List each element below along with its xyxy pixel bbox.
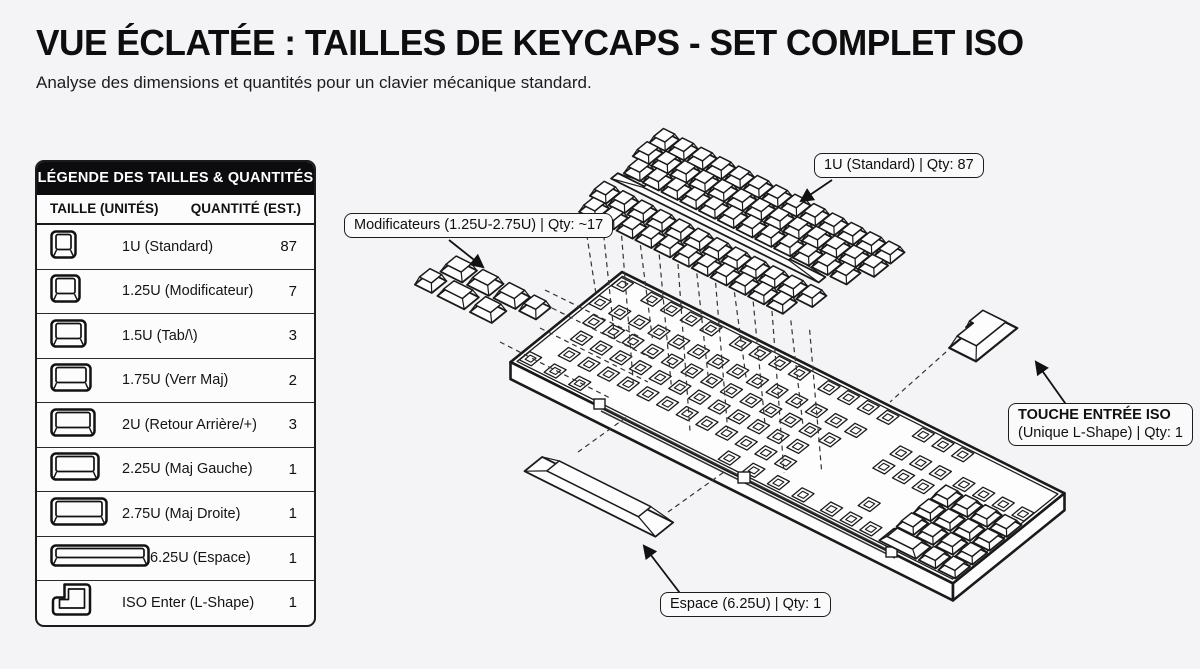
legend-row-label: 1.75U (Verr Maj) xyxy=(122,372,228,388)
legend-row: 1.25U (Modificateur) 7 xyxy=(37,270,314,315)
legend-row: 1.5U (Tab/\) 3 xyxy=(37,314,314,359)
page-header: VUE ÉCLATÉE : TAILLES DE KEYCAPS - SET C… xyxy=(36,22,1044,93)
callout-modifiers: Modificateurs (1.25U-2.75U) | Qty: ~17 xyxy=(344,213,613,238)
legend-row: 2U (Retour Arrière/+) 3 xyxy=(37,403,314,448)
legend-col-size: TAILLE (UNITÉS) xyxy=(50,201,159,216)
page-subtitle: Analyse des dimensions et quantités pour… xyxy=(36,73,1044,93)
legend-row: 2.25U (Maj Gauche) 1 xyxy=(37,448,314,493)
legend-row-qty: 87 xyxy=(273,238,301,255)
legend-row: ISO Enter (L-Shape) 1 xyxy=(37,581,314,625)
keycap-1-5u-icon xyxy=(50,319,87,353)
callout-spacebar: Espace (6.25U) | Qty: 1 xyxy=(660,592,831,617)
legend-row: 1U (Standard) 87 xyxy=(37,225,314,270)
legend-table: LÉGENDE DES TAILLES & QUANTITÉS TAILLE (… xyxy=(35,160,316,627)
legend-row-label: 1.5U (Tab/\) xyxy=(122,328,198,344)
legend-col-qty: QUANTITÉ (EST.) xyxy=(191,201,301,216)
legend-row-label: 2U (Retour Arrière/+) xyxy=(122,417,257,433)
legend-column-headers: TAILLE (UNITÉS) QUANTITÉ (EST.) xyxy=(37,195,314,225)
page-title: VUE ÉCLATÉE : TAILLES DE KEYCAPS - SET C… xyxy=(36,22,1024,64)
keycap-6-25u-icon xyxy=(50,544,150,572)
legend-header: LÉGENDE DES TAILLES & QUANTITÉS xyxy=(37,162,314,195)
keycap-iso-enter-icon xyxy=(50,582,94,623)
keycap-1-25u-icon xyxy=(50,274,81,308)
legend-row-label: 6.25U (Espace) xyxy=(150,550,251,566)
legend-row-label: 2.25U (Maj Gauche) xyxy=(122,461,253,477)
callout-iso-enter-sub: (Unique L-Shape) | Qty: 1 xyxy=(1018,424,1183,442)
legend-row-qty: 2 xyxy=(273,372,301,389)
legend-row-qty: 1 xyxy=(273,505,301,522)
legend-row-label: ISO Enter (L-Shape) xyxy=(122,595,254,611)
callout-1u-standard: 1U (Standard) | Qty: 87 xyxy=(814,153,984,178)
legend-row-qty: 1 xyxy=(273,594,301,611)
keycap-1-75u-icon xyxy=(50,363,92,397)
legend-row-label: 1U (Standard) xyxy=(122,239,213,255)
keycap-2u-icon xyxy=(50,408,96,442)
legend-row-qty: 7 xyxy=(273,283,301,300)
callout-iso-enter-title: TOUCHE ENTRÉE ISO xyxy=(1018,406,1183,424)
legend-row: 2.75U (Maj Droite) 1 xyxy=(37,492,314,537)
keycap-2-75u-icon xyxy=(50,497,108,531)
callout-iso-enter: TOUCHE ENTRÉE ISO (Unique L-Shape) | Qty… xyxy=(1008,403,1193,446)
legend-row-qty: 3 xyxy=(273,416,301,433)
keycap-2-25u-icon xyxy=(50,452,100,486)
legend-row-qty: 3 xyxy=(273,327,301,344)
keycap-1u-icon xyxy=(50,230,77,264)
legend-row: 6.25U (Espace) 1 xyxy=(37,537,314,582)
legend-row-label: 1.25U (Modificateur) xyxy=(122,283,253,299)
legend-row-label: 2.75U (Maj Droite) xyxy=(122,506,240,522)
legend-row: 1.75U (Verr Maj) 2 xyxy=(37,359,314,404)
legend-row-qty: 1 xyxy=(273,550,301,567)
legend-row-qty: 1 xyxy=(273,461,301,478)
